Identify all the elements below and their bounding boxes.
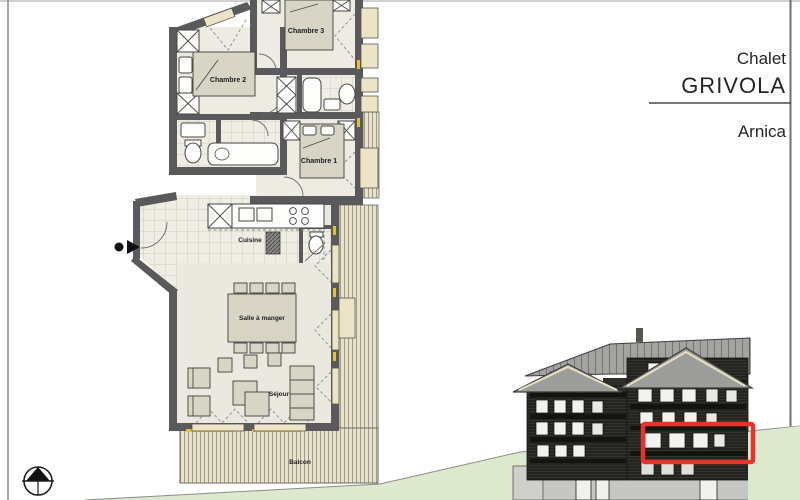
duct-shaft <box>266 232 280 254</box>
bathtub <box>303 78 321 112</box>
bed <box>193 52 255 96</box>
room-label: Chambre 2 <box>210 77 246 84</box>
kitchen-counter <box>208 204 324 228</box>
armchair <box>188 396 210 416</box>
sink <box>181 123 205 137</box>
sofa <box>290 366 314 420</box>
chimney <box>636 328 643 342</box>
room-label: Séjour <box>269 391 290 398</box>
bed <box>285 0 333 50</box>
side-table <box>268 353 281 366</box>
room-label: Salle à manger <box>239 315 285 322</box>
room-label: Chambre 3 <box>288 28 324 35</box>
project-name: GRIVOLA <box>681 73 786 98</box>
room-label: Cuisine <box>238 237 262 244</box>
building-elevation <box>513 328 800 500</box>
hillside-foreground <box>748 426 800 500</box>
project-title: Chalet <box>737 49 786 68</box>
room-label: Balcon <box>289 459 311 466</box>
sink <box>239 208 254 221</box>
architectural-plan-sheet: Chambre 2 Chambre <box>0 0 800 500</box>
nightstand <box>179 57 192 73</box>
toilet <box>339 84 355 104</box>
floor-plan: Chambre 2 Chambre <box>115 0 380 483</box>
bed <box>300 124 344 178</box>
title-block: Chalet GRIVOLA Arnica <box>649 49 791 141</box>
armchair <box>188 368 210 388</box>
sink <box>324 99 340 110</box>
sink <box>257 208 272 221</box>
nightstand <box>179 77 192 93</box>
room-label: Chambre 1 <box>301 158 337 165</box>
unit-name: Arnica <box>738 122 787 141</box>
side-table <box>244 355 257 368</box>
bathtub <box>208 143 278 165</box>
side-table <box>218 358 232 372</box>
balcony-deck <box>180 428 378 483</box>
toilet <box>185 140 201 163</box>
north-arrow-icon <box>22 467 54 495</box>
